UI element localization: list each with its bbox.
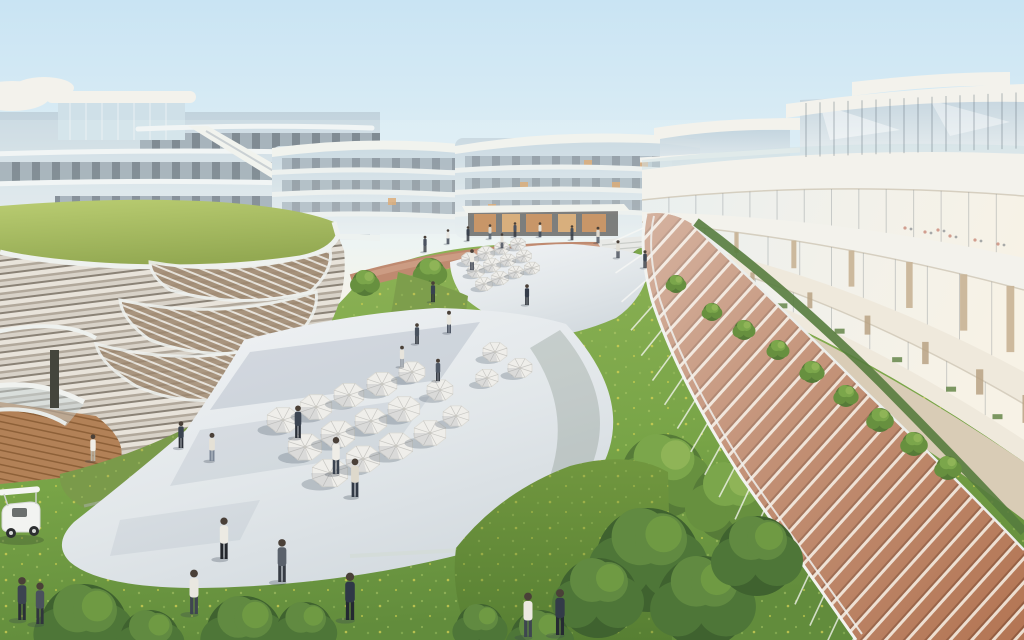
architectural-rendering <box>0 0 1024 640</box>
rendering-canvas <box>0 0 1024 640</box>
roof-lawn <box>0 200 338 267</box>
